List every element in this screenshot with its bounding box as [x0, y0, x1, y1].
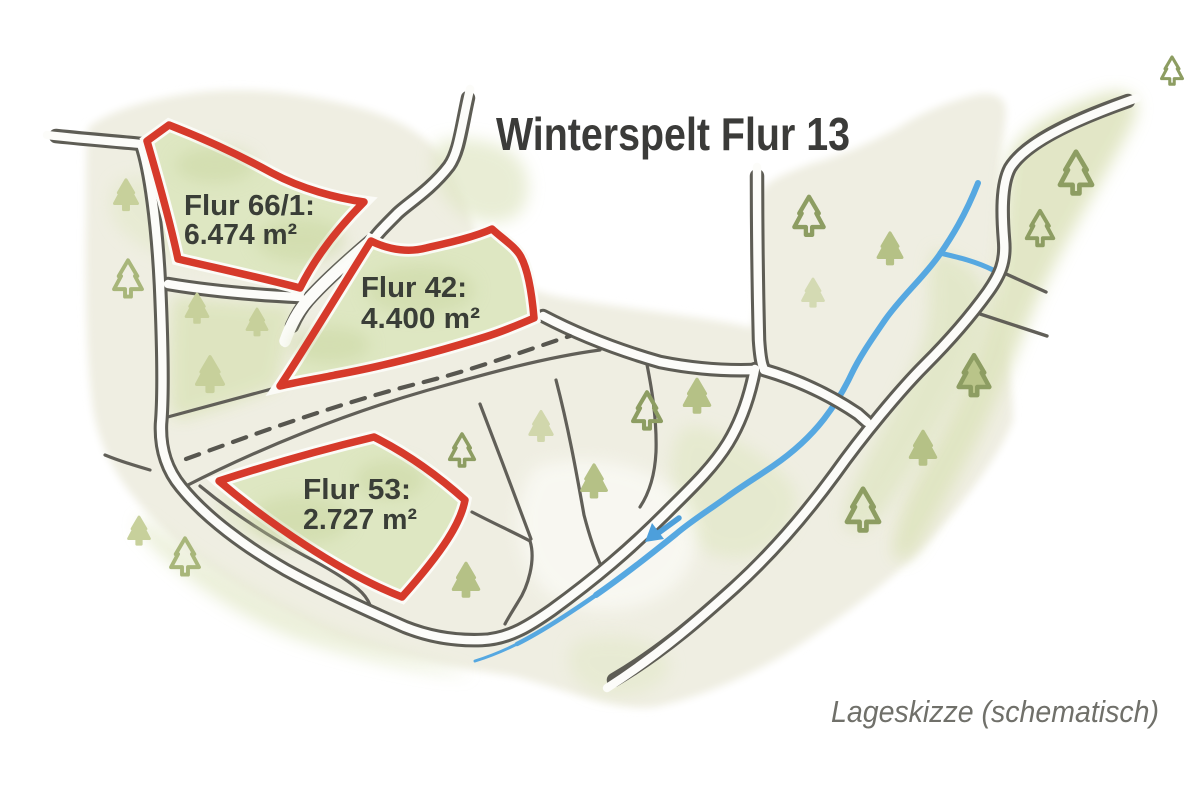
- svg-text:Flur 42:: Flur 42:: [361, 272, 467, 304]
- svg-text:Flur 53:: Flur 53:: [303, 474, 411, 506]
- svg-text:Lageskizze (schematisch): Lageskizze (schematisch): [831, 694, 1159, 729]
- svg-text:2.727 m²: 2.727 m²: [303, 504, 417, 536]
- svg-text:Winterspelt Flur 13: Winterspelt Flur 13: [496, 108, 850, 160]
- svg-text:4.400 m²: 4.400 m²: [361, 303, 480, 335]
- svg-text:Flur 66/1:: Flur 66/1:: [184, 190, 315, 222]
- svg-text:6.474 m²: 6.474 m²: [184, 219, 297, 251]
